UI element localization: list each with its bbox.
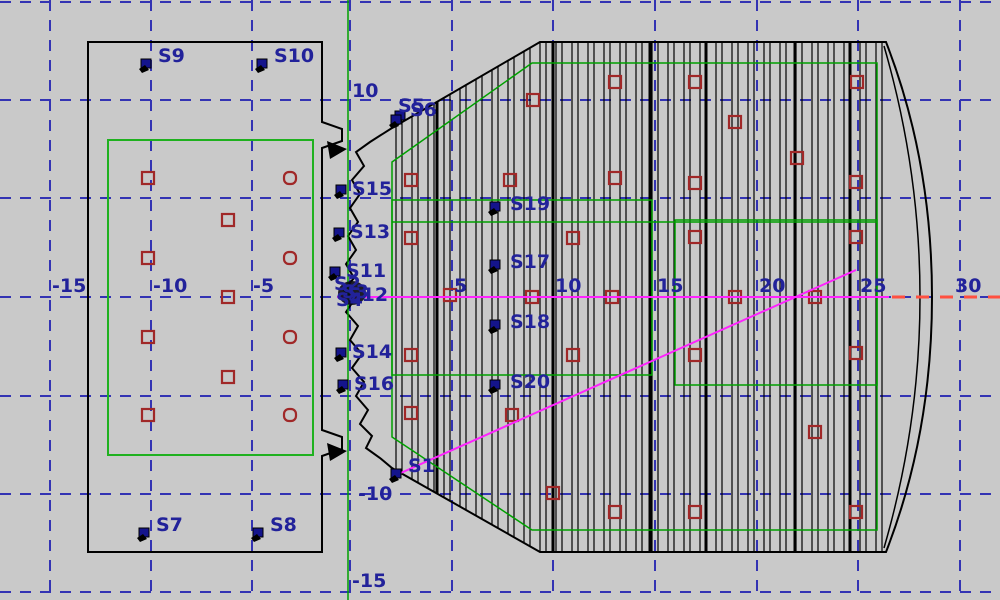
sensor-label-S6[interactable]: S6 [410, 99, 437, 121]
sensor-label-S15[interactable]: S15 [352, 178, 392, 200]
sensor-label-S19[interactable]: S19 [510, 193, 550, 215]
tick-label: -15 [52, 275, 86, 297]
sensor-label-S12[interactable]: S12 [348, 284, 388, 306]
sensor-label-S13[interactable]: S13 [350, 221, 390, 243]
tick-label: 15 [657, 275, 683, 297]
tick-label: -15 [352, 570, 386, 592]
sensor-label-S8[interactable]: S8 [270, 514, 297, 536]
tick-label: 5 [454, 275, 467, 297]
cad-drawing-viewport[interactable]: S9S10S7S8S5S6S15S13S11S14S16S19S17S18S20… [0, 0, 1000, 600]
sensor-label-S7[interactable]: S7 [156, 514, 183, 536]
tick-label: 25 [860, 275, 886, 297]
sensor-layout-plot[interactable]: S9S10S7S8S5S6S15S13S11S14S16S19S17S18S20… [0, 0, 1000, 600]
tick-label: -10 [153, 275, 187, 297]
sensor-label-S10[interactable]: S10 [274, 45, 314, 67]
tick-label: 30 [955, 275, 981, 297]
tick-label: 20 [759, 275, 785, 297]
sensor-label-S16[interactable]: S16 [354, 373, 394, 395]
sensor-label-S9[interactable]: S9 [158, 45, 185, 67]
tick-label: -5 [253, 275, 274, 297]
sensor-label-S1[interactable]: S1 [408, 455, 435, 477]
sensor-label-S18[interactable]: S18 [510, 311, 550, 333]
tick-label: 10 [352, 80, 378, 102]
tick-label: 10 [555, 275, 581, 297]
tick-label: -10 [358, 483, 392, 505]
sensor-label-S14[interactable]: S14 [352, 341, 392, 363]
sensor-label-S20[interactable]: S20 [510, 371, 550, 393]
sensor-label-S17[interactable]: S17 [510, 251, 550, 273]
